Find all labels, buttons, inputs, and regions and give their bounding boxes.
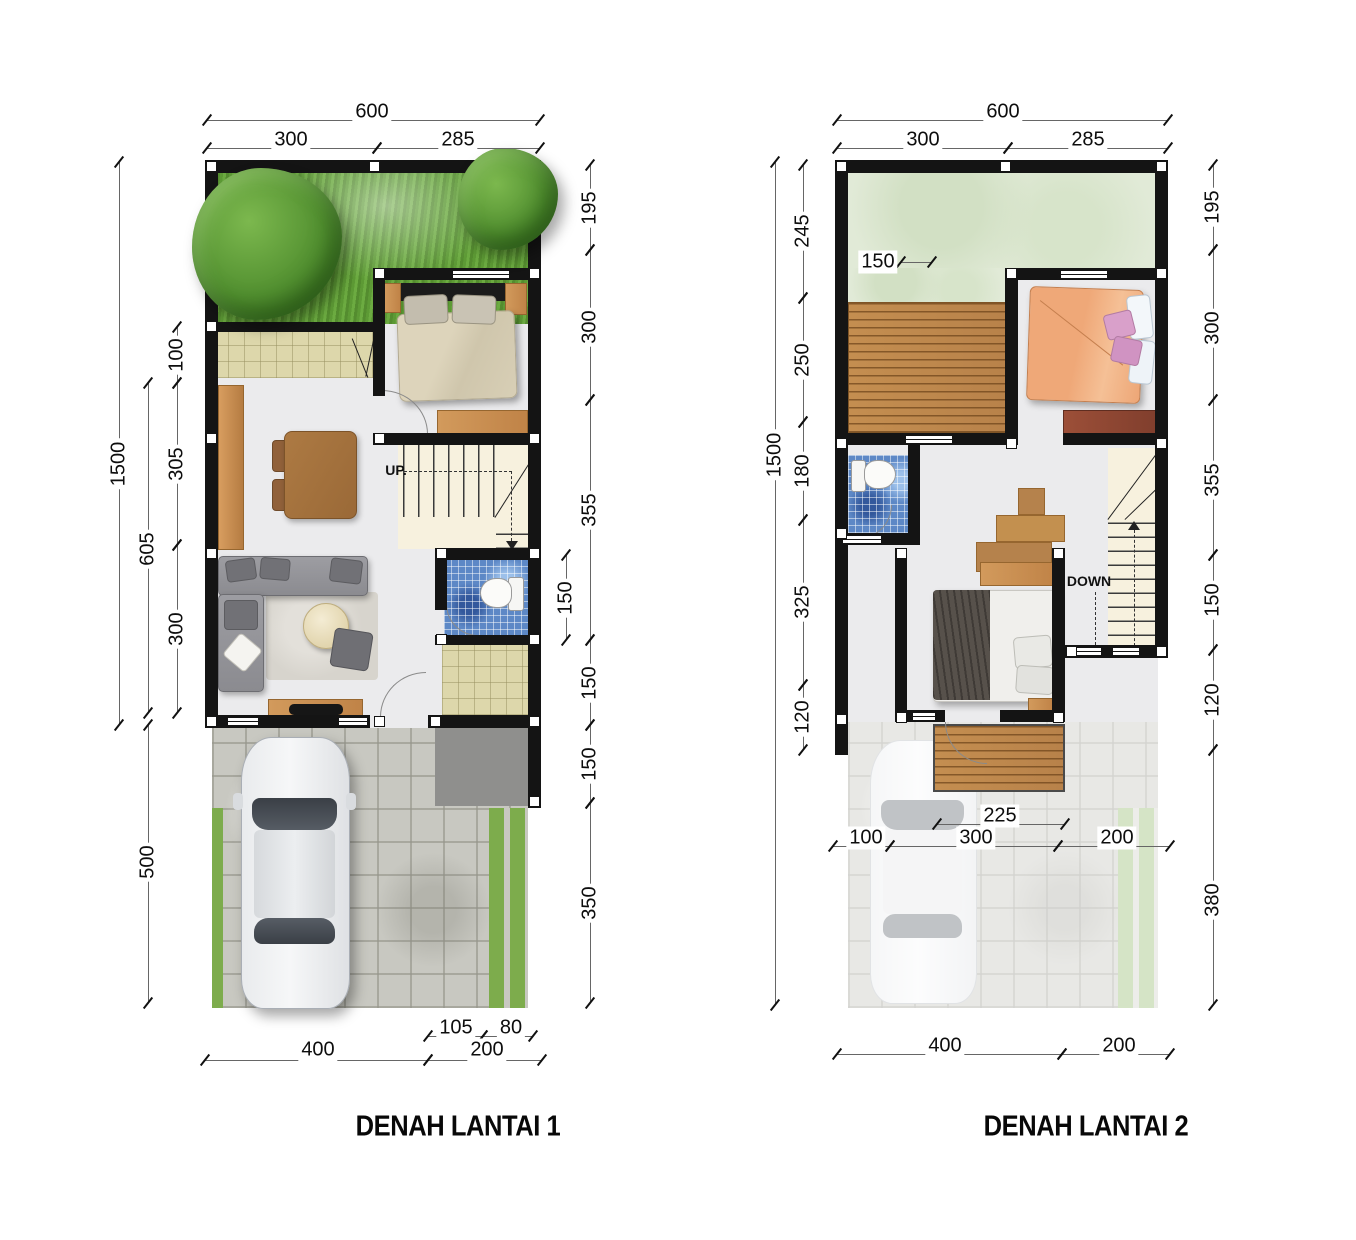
plan2-bed3-window [912, 712, 936, 721]
column-marker [529, 268, 540, 279]
dimension-label: 200 [467, 1039, 506, 1062]
plan1-wall-bath-top [435, 548, 541, 560]
dimension-label: 180 [792, 451, 815, 490]
dimension-label: 150 [579, 744, 602, 783]
dimension-label: 500 [137, 842, 160, 881]
plan1-wall-bath-bottom [435, 635, 541, 645]
column-marker [896, 548, 907, 559]
plan2-wardrobe-2 [996, 515, 1065, 542]
column-marker [1006, 438, 1017, 449]
dimension-label: 225 [980, 805, 1019, 828]
column-marker [206, 548, 217, 559]
dimension-label: 200 [1097, 827, 1136, 850]
stair-direction-label: DOWN [1067, 573, 1111, 589]
plan2-wall-bed3-right [1052, 548, 1065, 722]
plan2-wall-right [1155, 160, 1168, 658]
dimension-label: 150 [1202, 580, 1225, 619]
dimension-label: 305 [166, 444, 189, 483]
column-marker [436, 548, 447, 559]
dimension-label: 400 [298, 1039, 337, 1062]
plan1-armchair [329, 627, 374, 672]
plan1-car-mirror-left [233, 793, 243, 810]
plan1-wall-cabinet [218, 385, 244, 550]
plan2-wall-left [835, 160, 848, 755]
column-marker [529, 548, 540, 559]
dimension-label: 300 [903, 129, 942, 152]
plan1-tree-small [458, 148, 558, 250]
plan1-sofa-cushion-2 [259, 557, 291, 582]
dimension-label: 1500 [764, 430, 787, 481]
plan-title: DENAH LANTAI 1 [356, 1111, 561, 1144]
plan1-wall-living-bottom-right [428, 715, 541, 728]
column-marker [436, 634, 447, 645]
column-marker [529, 634, 540, 645]
dimension-label: 300 [1202, 308, 1225, 347]
dimension-label: 150 [579, 663, 602, 702]
plan2-stairs-window-2 [1112, 647, 1140, 656]
dimension-label: 300 [166, 609, 189, 648]
plan1-tv [289, 704, 343, 715]
plan2-bed3-dark-blanket [933, 590, 990, 700]
column-marker [1066, 646, 1077, 657]
plan1-wall-right [528, 160, 541, 808]
column-marker [374, 268, 385, 279]
dimension-label: 105 [436, 1017, 475, 1040]
column-marker [836, 438, 847, 449]
dimension-label: 150 [555, 578, 578, 617]
column-marker [430, 716, 441, 727]
plan2-toilet-bowl [864, 460, 896, 489]
plan2-stair-path-v [1134, 530, 1135, 646]
plan1-car-windshield [252, 798, 337, 830]
plan-title: DENAH LANTAI 2 [984, 1111, 1189, 1144]
dimension-label: 600 [983, 101, 1022, 124]
plan1-side-terrace-tiles [442, 645, 528, 715]
dimension-label: 600 [352, 101, 391, 124]
dimension-label: 300 [956, 827, 995, 850]
dimension-label: 325 [792, 582, 815, 621]
dimension-label: 300 [579, 307, 602, 346]
dimension-label: 245 [792, 211, 815, 250]
plan1-car-roof [254, 830, 335, 918]
column-marker [896, 712, 907, 723]
plan1-bed-pillow-right [452, 294, 497, 325]
column-marker [206, 433, 217, 444]
dimension-label: 300 [271, 129, 310, 152]
dimension-label: 285 [438, 129, 477, 152]
dimension-label: 380 [1202, 880, 1225, 919]
plan2-down-path-v [1095, 592, 1096, 645]
plan1-grass-strip-left [212, 808, 223, 1008]
plan2-wall-bath-right [908, 445, 920, 545]
plan1-stair-path [404, 471, 512, 472]
dimension-line [1213, 750, 1214, 1005]
floor-plan-sheet: 6003002851500100305300605500195300355150… [0, 0, 1356, 1240]
plan1-living-window-1 [227, 717, 259, 726]
plan1-wall-stairs-top [373, 433, 541, 445]
plan2-bedroom2-window [1060, 270, 1108, 279]
dimension-label: 355 [579, 490, 602, 529]
column-marker [206, 716, 217, 727]
plan2-wardrobe-1 [1018, 488, 1045, 515]
column-marker [1156, 268, 1167, 279]
column-marker [1156, 161, 1167, 172]
plan1-stair-path-v [511, 471, 512, 541]
plan1-car-rear-window [254, 918, 335, 944]
column-marker [1053, 712, 1064, 723]
plan1-living-window-2 [338, 717, 368, 726]
column-marker [206, 321, 217, 332]
column-marker [1053, 548, 1064, 559]
column-marker [836, 528, 847, 539]
plan1-side-pad [435, 728, 528, 806]
plan1-toilet-bowl [480, 578, 512, 608]
column-marker [206, 161, 217, 172]
column-marker [1156, 646, 1167, 657]
dimension-label: 195 [579, 188, 602, 227]
column-marker [836, 161, 847, 172]
plan1-car-mirror-right [346, 793, 356, 810]
dimension-label: 120 [792, 697, 815, 736]
dimension-label: 605 [137, 529, 160, 568]
plan2-wall-bedroom2-left [1005, 268, 1018, 445]
dimension-label: 1500 [108, 439, 131, 490]
dimension-label: 400 [925, 1035, 964, 1058]
dimension-line [901, 262, 932, 263]
plan1-bed-pillow-left [403, 294, 448, 325]
plan2-bed3-headboard-shelf [980, 562, 1056, 586]
dimension-label: 120 [1202, 680, 1225, 719]
dimension-label: 350 [579, 883, 602, 922]
dimension-label: 80 [497, 1017, 525, 1040]
plan1-bedroom-dresser [437, 410, 528, 434]
plan1-bedroom-window [452, 270, 510, 279]
plan2-wall-hall-top-right [1063, 433, 1168, 445]
plan1-dining-table [284, 431, 357, 519]
plan1-sofa-cushion-4 [224, 600, 258, 630]
plan1-stair-treads [403, 445, 498, 517]
dimension-label: 195 [1202, 187, 1225, 226]
column-marker [529, 716, 540, 727]
plan2-wood-deck [848, 302, 1008, 433]
dimension-label: 200 [1099, 1035, 1138, 1058]
plan2-bed3-pillow-2 [1015, 665, 1055, 696]
plan2-bath-window [842, 535, 882, 544]
dimension-line [775, 162, 776, 1005]
stair-direction-label: UP. [385, 462, 407, 478]
plan1-wall-bedroom-left [373, 268, 385, 396]
column-marker [836, 714, 847, 725]
dimension-label: 250 [792, 340, 815, 379]
plan1-bed-sidetable-left [384, 283, 401, 313]
plan1-sofa-cushion-1 [225, 557, 258, 583]
column-marker [369, 161, 380, 172]
plan1-grass-strip-right [489, 808, 528, 1008]
plan1-sofa-cushion-3 [329, 557, 364, 585]
column-marker [1000, 161, 1011, 172]
plan1-wall-terrace [205, 322, 380, 332]
column-marker [529, 433, 540, 444]
dimension-label: 150 [858, 251, 897, 274]
plan2-deck-window [905, 435, 953, 444]
column-marker [1156, 438, 1167, 449]
column-marker [529, 796, 540, 807]
plan2-bed3-pillow-1 [1013, 634, 1054, 669]
column-marker [374, 716, 385, 727]
plan2-stair-arrow [1128, 521, 1140, 530]
column-marker [1006, 268, 1017, 279]
plan2-wall-bed3-left [895, 548, 907, 722]
dimension-label: 100 [166, 335, 189, 374]
dimension-label: 355 [1202, 460, 1225, 499]
dimension-label: 100 [846, 827, 885, 850]
column-marker [374, 433, 385, 444]
dimension-label: 285 [1068, 129, 1107, 152]
